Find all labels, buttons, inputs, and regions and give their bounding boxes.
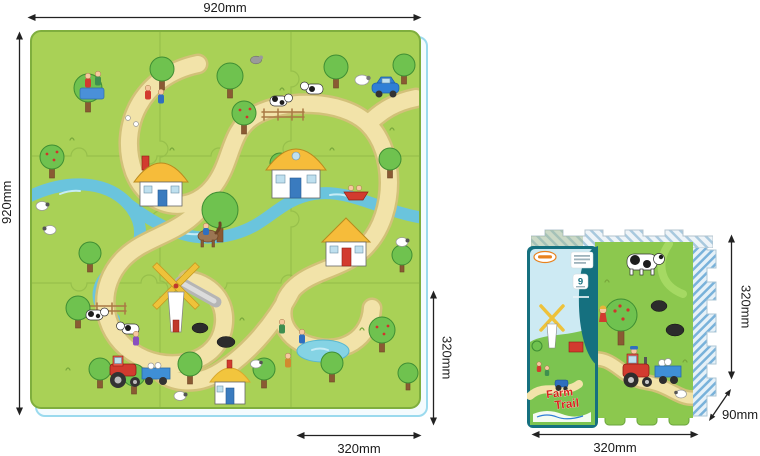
package-width-label: 320mm [531,441,699,455]
svg-text:Trail: Trail [554,396,580,413]
picnic-blanket [80,88,104,99]
package-stack-side [691,236,719,418]
mat-tile-height-arrow [428,290,439,426]
mat-height-label: 920mm [0,12,14,392]
package-depth-label: 90mm [722,408,760,422]
package-width-arrow [531,429,699,440]
mat-height-arrow [14,31,25,416]
mat-tile-width-label: 320mm [296,442,422,456]
mat-tile-height-label: 320mm [439,292,453,424]
package-height-arrow [726,234,737,380]
face-pig [666,324,684,336]
sleeve-info-label [571,252,593,268]
package-front-face [595,242,693,418]
package: 9 Farm Trail [527,228,719,434]
piece-count: 9 [578,277,583,288]
mat-tile-width-arrow [296,430,422,441]
product-dimension-diagram: 920mm 920mm [0,0,760,456]
mat-art [30,30,421,409]
face-pig [651,301,667,312]
package-height-label: 320mm [738,252,752,362]
sleeve-barn [569,342,583,352]
brand-logo-oval [534,252,556,263]
package-sleeve: 9 Farm Trail [527,246,598,428]
mat-width-arrow [27,12,422,23]
mat-illustration [30,30,421,409]
